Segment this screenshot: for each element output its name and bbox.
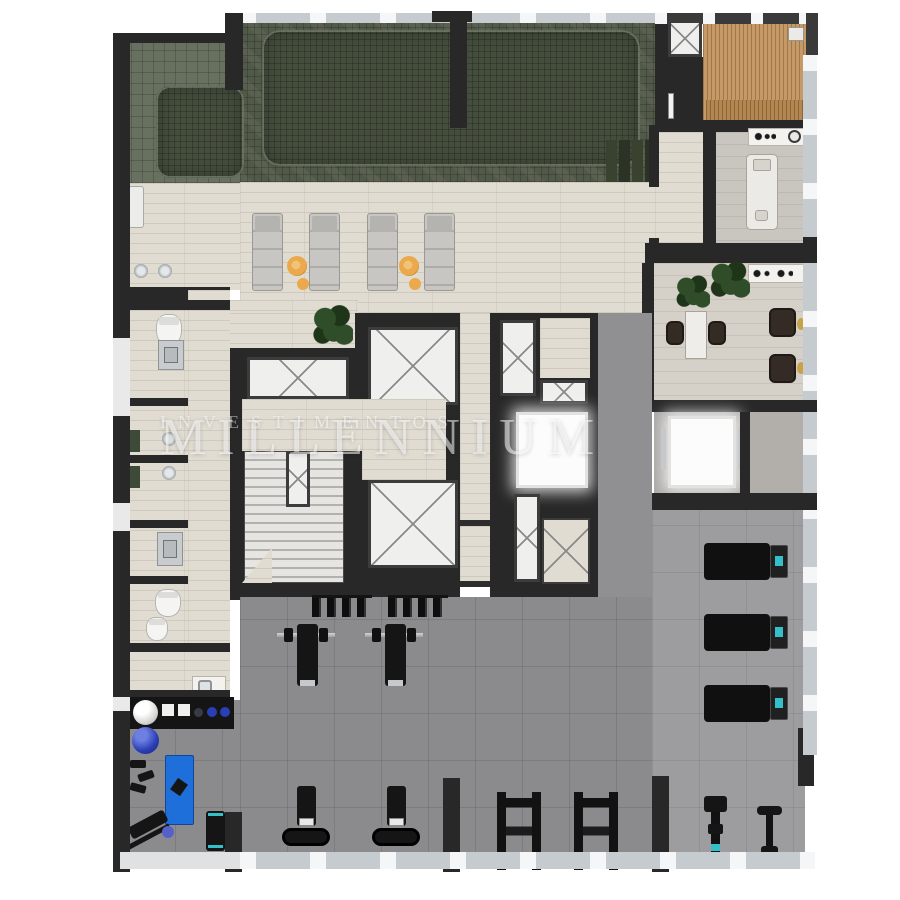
dumbbell-rack [312,595,372,617]
lounge-desk [685,311,707,359]
weight-bench [385,624,406,686]
stair-core-shaft [286,451,310,507]
shower [162,466,176,480]
pool-steps [632,140,643,182]
east-corner-block [806,13,818,55]
plant [676,274,710,310]
bike-handlebar [757,806,782,815]
towel-roll [399,256,419,276]
machine-seat [389,818,404,826]
kettle-icon [788,130,801,143]
equipment-box [178,704,190,716]
armchair [769,354,796,383]
vanity-sink [157,532,183,566]
massage-room-west-wall [703,132,716,243]
spa-corridor-wall [649,125,659,187]
bath-partition [120,643,230,652]
equipment-box [162,704,174,716]
bath-partition [120,576,188,584]
storage-shaft [542,518,590,584]
sauna-door [668,93,674,119]
machine-base [282,828,330,846]
machine-seat [299,818,314,826]
treadmill-screen [775,627,783,637]
right-band-wall [642,493,815,510]
treadmill-screen [775,698,783,708]
right-service-room [750,412,805,493]
desk-chair [666,321,684,345]
outdoor-shower [134,264,148,278]
south-glass-facade [240,852,815,869]
elevator-shaft [368,480,458,568]
dumbbell-rack [388,595,448,617]
elevator-room-divider [740,412,750,493]
elevator-rail [661,428,666,470]
east-wall-segment [803,237,817,263]
storage-room [460,520,490,587]
barbell-plate [407,628,416,642]
machine-base [372,828,420,846]
shaft-column-room [540,318,590,378]
sun-lounger [424,213,455,291]
floorplan-canvas: MILLENNIUM INVESTIMENTOS [0,0,900,900]
elevator-shaft [368,327,458,405]
bathroom-corridor [188,290,230,702]
bench-foot [300,680,315,686]
rower-head [704,796,727,812]
medicine-ball [220,707,230,717]
toilet [146,617,168,641]
water-cooler-light [208,845,223,848]
south-sill [120,852,240,869]
plant [313,303,353,348]
west-window [113,503,130,531]
barbell-plate [284,628,293,642]
pool-steps [619,140,630,182]
service-shaft [500,320,536,396]
elevator-car [516,412,588,488]
shower [162,432,176,446]
treadmill-screen [775,556,783,566]
pool-steps [606,140,617,182]
treadmill [704,614,770,651]
elevator-car [668,416,736,488]
sun-lounger [309,213,340,291]
west-window [113,338,130,416]
north-wall-left [128,33,228,43]
rower-screen [711,844,720,851]
outdoor-shower [158,264,172,278]
sauna-bench [706,100,806,120]
west-wall [113,33,130,872]
medicine-ball [194,708,203,717]
bath-partition [120,300,230,310]
toilet [155,589,181,617]
armchair [769,308,796,337]
barbell-plate [372,628,381,642]
east-wall-segment [803,493,817,510]
service-corridor [460,313,490,520]
counter-items-icon [753,269,793,278]
bath-partition [120,520,188,528]
duct-shaft-elevator [668,20,702,57]
service-shaft [514,494,540,582]
massage-table-facehole [755,210,768,221]
sauna-heater [788,27,804,41]
dumbbell-pair [130,760,146,768]
sun-lounger [367,213,398,291]
pool-divider-cap [432,11,472,22]
rower-seat [708,824,723,834]
bench-foot [388,680,403,686]
weight-bench [297,624,318,686]
bath-partition [120,398,188,406]
service-shaft [540,380,588,404]
east-wall-segment [803,400,817,412]
pool-divider-wall [450,13,467,128]
right-band-wall [642,400,815,412]
medicine-ball [207,707,217,717]
gym-corridor [598,313,652,597]
treadmill [704,685,770,722]
exercise-ball [132,727,159,754]
exercise-ball [133,700,158,725]
core-lobby-east [362,399,446,480]
counter-items-icon [754,132,776,141]
kitchenette-sink [158,340,184,370]
water-cooler-light [208,813,223,816]
plant [710,260,750,300]
bath-partition [120,455,188,463]
towel-roll [287,256,307,276]
treadmill [704,543,770,580]
sauna-west-block [655,57,703,132]
weight-plate [162,826,174,838]
massage-table-headrest [753,159,771,171]
elevator-shaft [247,357,349,399]
north-pillar [225,13,243,90]
sun-lounger [252,213,283,291]
west-window [113,697,130,711]
barbell-plate [319,628,328,642]
desk-chair [708,321,726,345]
pool-water-left-lobe [156,86,244,178]
